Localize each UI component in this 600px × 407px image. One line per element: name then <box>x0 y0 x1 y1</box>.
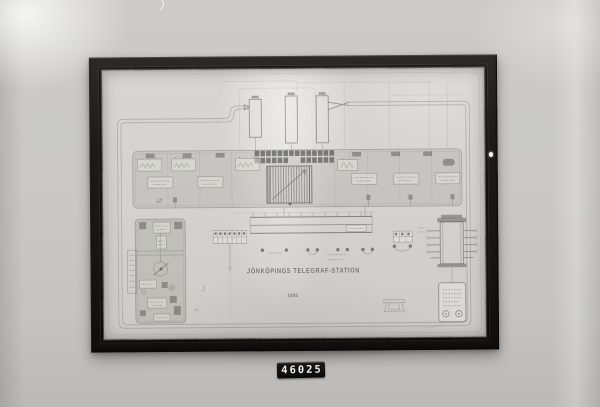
catalog-label-plate: 46025 <box>277 361 325 378</box>
junction-box <box>422 283 466 328</box>
terminal-dots <box>261 248 374 261</box>
switchboard-panel <box>127 219 186 323</box>
drawing-title: JÖNKÖPINGS TELEGRAF-STATION <box>247 265 360 275</box>
glazed-drawing: JÖNKÖPINGS TELEGRAF-STATION 1891 <box>102 68 486 340</box>
catalog-number: 46025 <box>281 364 323 377</box>
picture-frame: JÖNKÖPINGS TELEGRAF-STATION 1891 <box>89 54 499 352</box>
frame-highlight-speck <box>489 152 493 157</box>
distribution-table <box>213 230 247 320</box>
schematic-drawing: JÖNKÖPINGS TELEGRAF-STATION 1891 <box>102 68 486 340</box>
fuse-strip <box>393 231 413 251</box>
terminal-ladders <box>239 88 328 151</box>
cable-terminal <box>419 215 477 283</box>
film-scratch <box>140 0 166 14</box>
apparatus-band <box>133 149 462 209</box>
central-instrument <box>267 166 312 203</box>
busbar-band <box>231 206 375 260</box>
drawing-title-block: JÖNKÖPINGS TELEGRAF-STATION 1891 <box>247 265 360 299</box>
pencil-marks <box>195 286 205 311</box>
museum-photo: JÖNKÖPINGS TELEGRAF-STATION 1891 46025 <box>0 0 600 407</box>
drawing-year: 1891 <box>287 293 298 299</box>
cable-stand <box>384 300 405 312</box>
